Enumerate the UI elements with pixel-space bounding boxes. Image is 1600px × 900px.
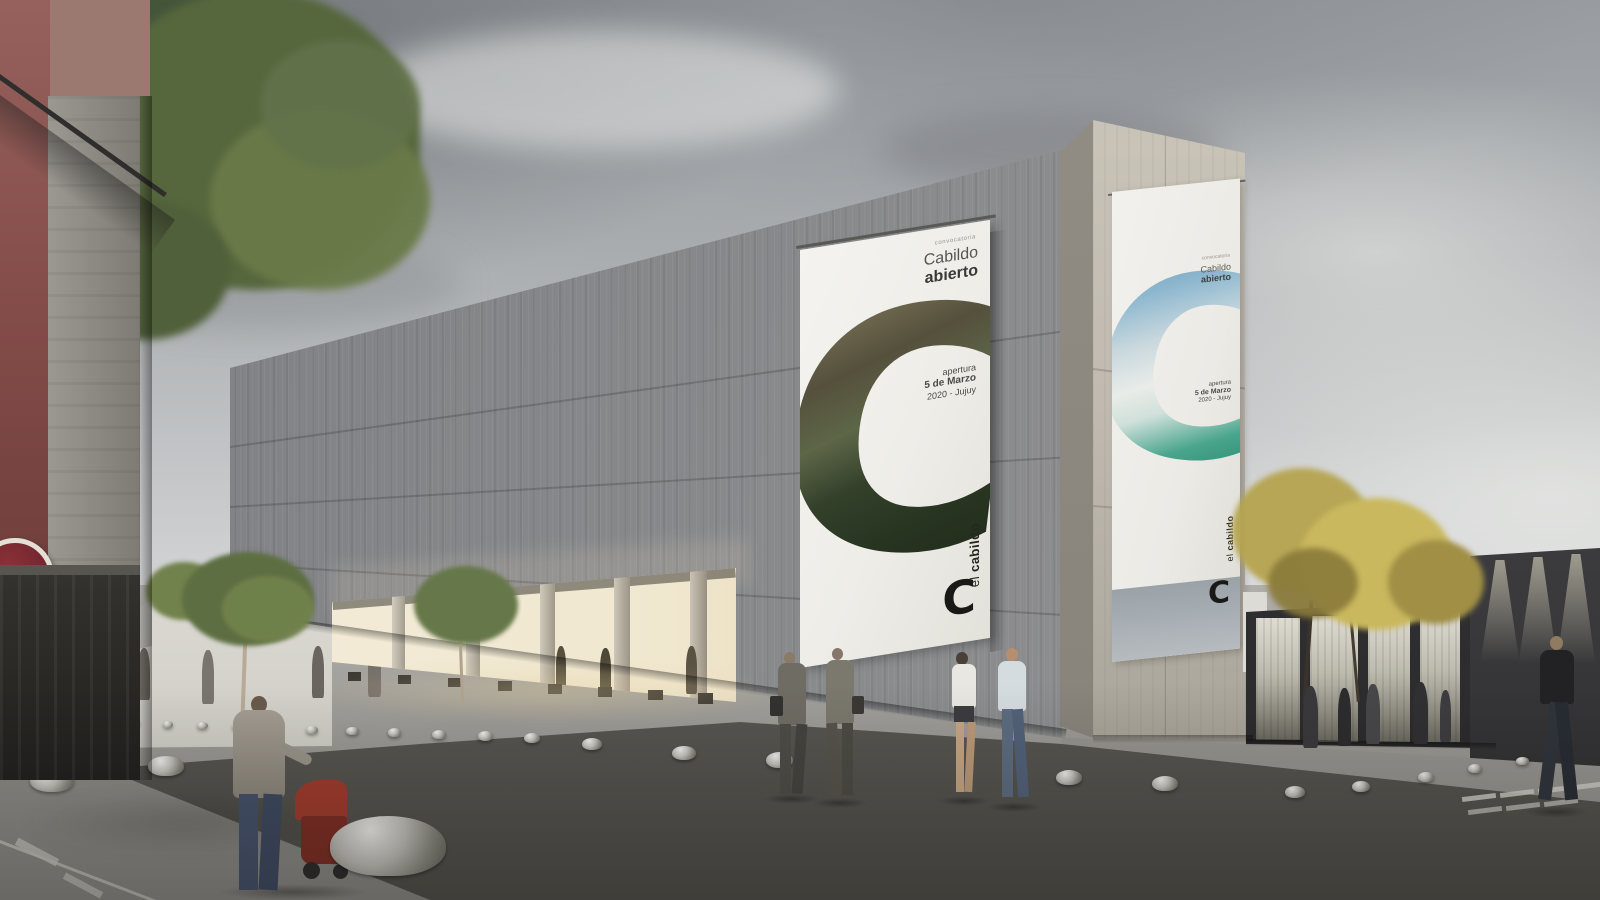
banner-right-title: Cabildo abierto xyxy=(1200,261,1231,285)
torso xyxy=(952,664,976,708)
banner-right-brand-letter: C xyxy=(1208,578,1230,610)
bag xyxy=(852,696,864,714)
banner-right: C convocatoria Cabildo abierto apertura … xyxy=(1112,179,1240,662)
head xyxy=(1006,648,1018,661)
bollard-large xyxy=(330,816,446,876)
legs xyxy=(780,724,791,794)
legs xyxy=(964,722,976,792)
person-suit-man xyxy=(770,652,814,802)
stroller-canopy xyxy=(295,780,347,820)
legs xyxy=(826,723,841,795)
tree-canopy-large xyxy=(260,40,420,170)
person-suit-man xyxy=(816,648,866,804)
torso xyxy=(998,661,1026,711)
person-silhouette xyxy=(1303,686,1318,748)
torso xyxy=(826,660,854,724)
stroller-wheel xyxy=(303,862,320,879)
legs xyxy=(259,794,283,891)
legs xyxy=(792,724,808,795)
person-silhouette xyxy=(1413,682,1428,744)
brand-el: el xyxy=(1225,553,1235,562)
bollard xyxy=(1418,772,1434,782)
person-silhouette xyxy=(1440,690,1451,742)
banner-left-wall-shadow xyxy=(990,229,1006,652)
head xyxy=(832,648,843,660)
head xyxy=(1550,636,1563,650)
legs xyxy=(956,722,964,792)
bollard xyxy=(1152,776,1178,791)
legs xyxy=(239,794,258,890)
bollard xyxy=(478,731,493,741)
person-man-blue-shirt xyxy=(990,648,1034,808)
person-silhouette xyxy=(1338,688,1351,746)
banner-left: C convocatoria Cabildo abierto apertura … xyxy=(800,220,990,668)
person-silhouette xyxy=(1366,684,1380,744)
torso xyxy=(233,710,285,798)
bollard xyxy=(1056,770,1082,785)
banner-left-brand-letter: C xyxy=(942,572,976,623)
tree-canopy-yellow xyxy=(1388,540,1484,624)
bollard xyxy=(148,756,184,776)
gallery-lit-panel xyxy=(1256,618,1300,740)
storefront-transom xyxy=(0,565,140,575)
bollard xyxy=(1285,786,1305,798)
pavement-glow xyxy=(310,662,790,722)
person-silhouette xyxy=(202,650,214,704)
banner-right-brand-text: el cabildo xyxy=(1226,461,1235,562)
bollard xyxy=(672,746,696,760)
bag xyxy=(770,696,783,716)
tree-canopy-green xyxy=(222,576,314,642)
person-woman-white-top xyxy=(944,652,984,802)
bollard xyxy=(388,728,401,737)
tree-canopy-green xyxy=(414,566,518,644)
bollard xyxy=(1516,757,1529,765)
bollard xyxy=(582,738,602,750)
brand-name: cabildo xyxy=(967,522,982,573)
left-building-pink-top xyxy=(50,0,150,96)
cloud xyxy=(360,30,840,150)
bollard xyxy=(163,721,173,728)
bollard xyxy=(432,730,446,739)
bollard xyxy=(1468,764,1482,773)
downlight-cone xyxy=(1478,560,1522,680)
banner-right-event: apertura 5 de Marzo 2020 - Jujuy xyxy=(1195,379,1231,405)
torso xyxy=(1540,650,1574,704)
left-building-edge-shade xyxy=(138,96,152,780)
shorts xyxy=(954,706,974,722)
torso xyxy=(778,663,806,725)
person-man-black-tee xyxy=(1532,636,1584,814)
banner-left-photo-letter: C xyxy=(800,262,990,605)
legs xyxy=(1555,702,1578,801)
bollard xyxy=(197,722,208,729)
person-woman-stroller xyxy=(215,696,355,900)
legs xyxy=(1002,709,1013,797)
bollard xyxy=(524,733,540,743)
bollard xyxy=(1352,781,1370,792)
legs xyxy=(842,723,853,795)
building-contact-shadow xyxy=(1093,735,1253,743)
tree-canopy-yellow xyxy=(1268,548,1358,618)
architectural-rendering: C convocatoria Cabildo abierto apertura … xyxy=(0,0,1600,900)
left-storefront xyxy=(0,565,140,780)
legs xyxy=(1012,709,1029,798)
